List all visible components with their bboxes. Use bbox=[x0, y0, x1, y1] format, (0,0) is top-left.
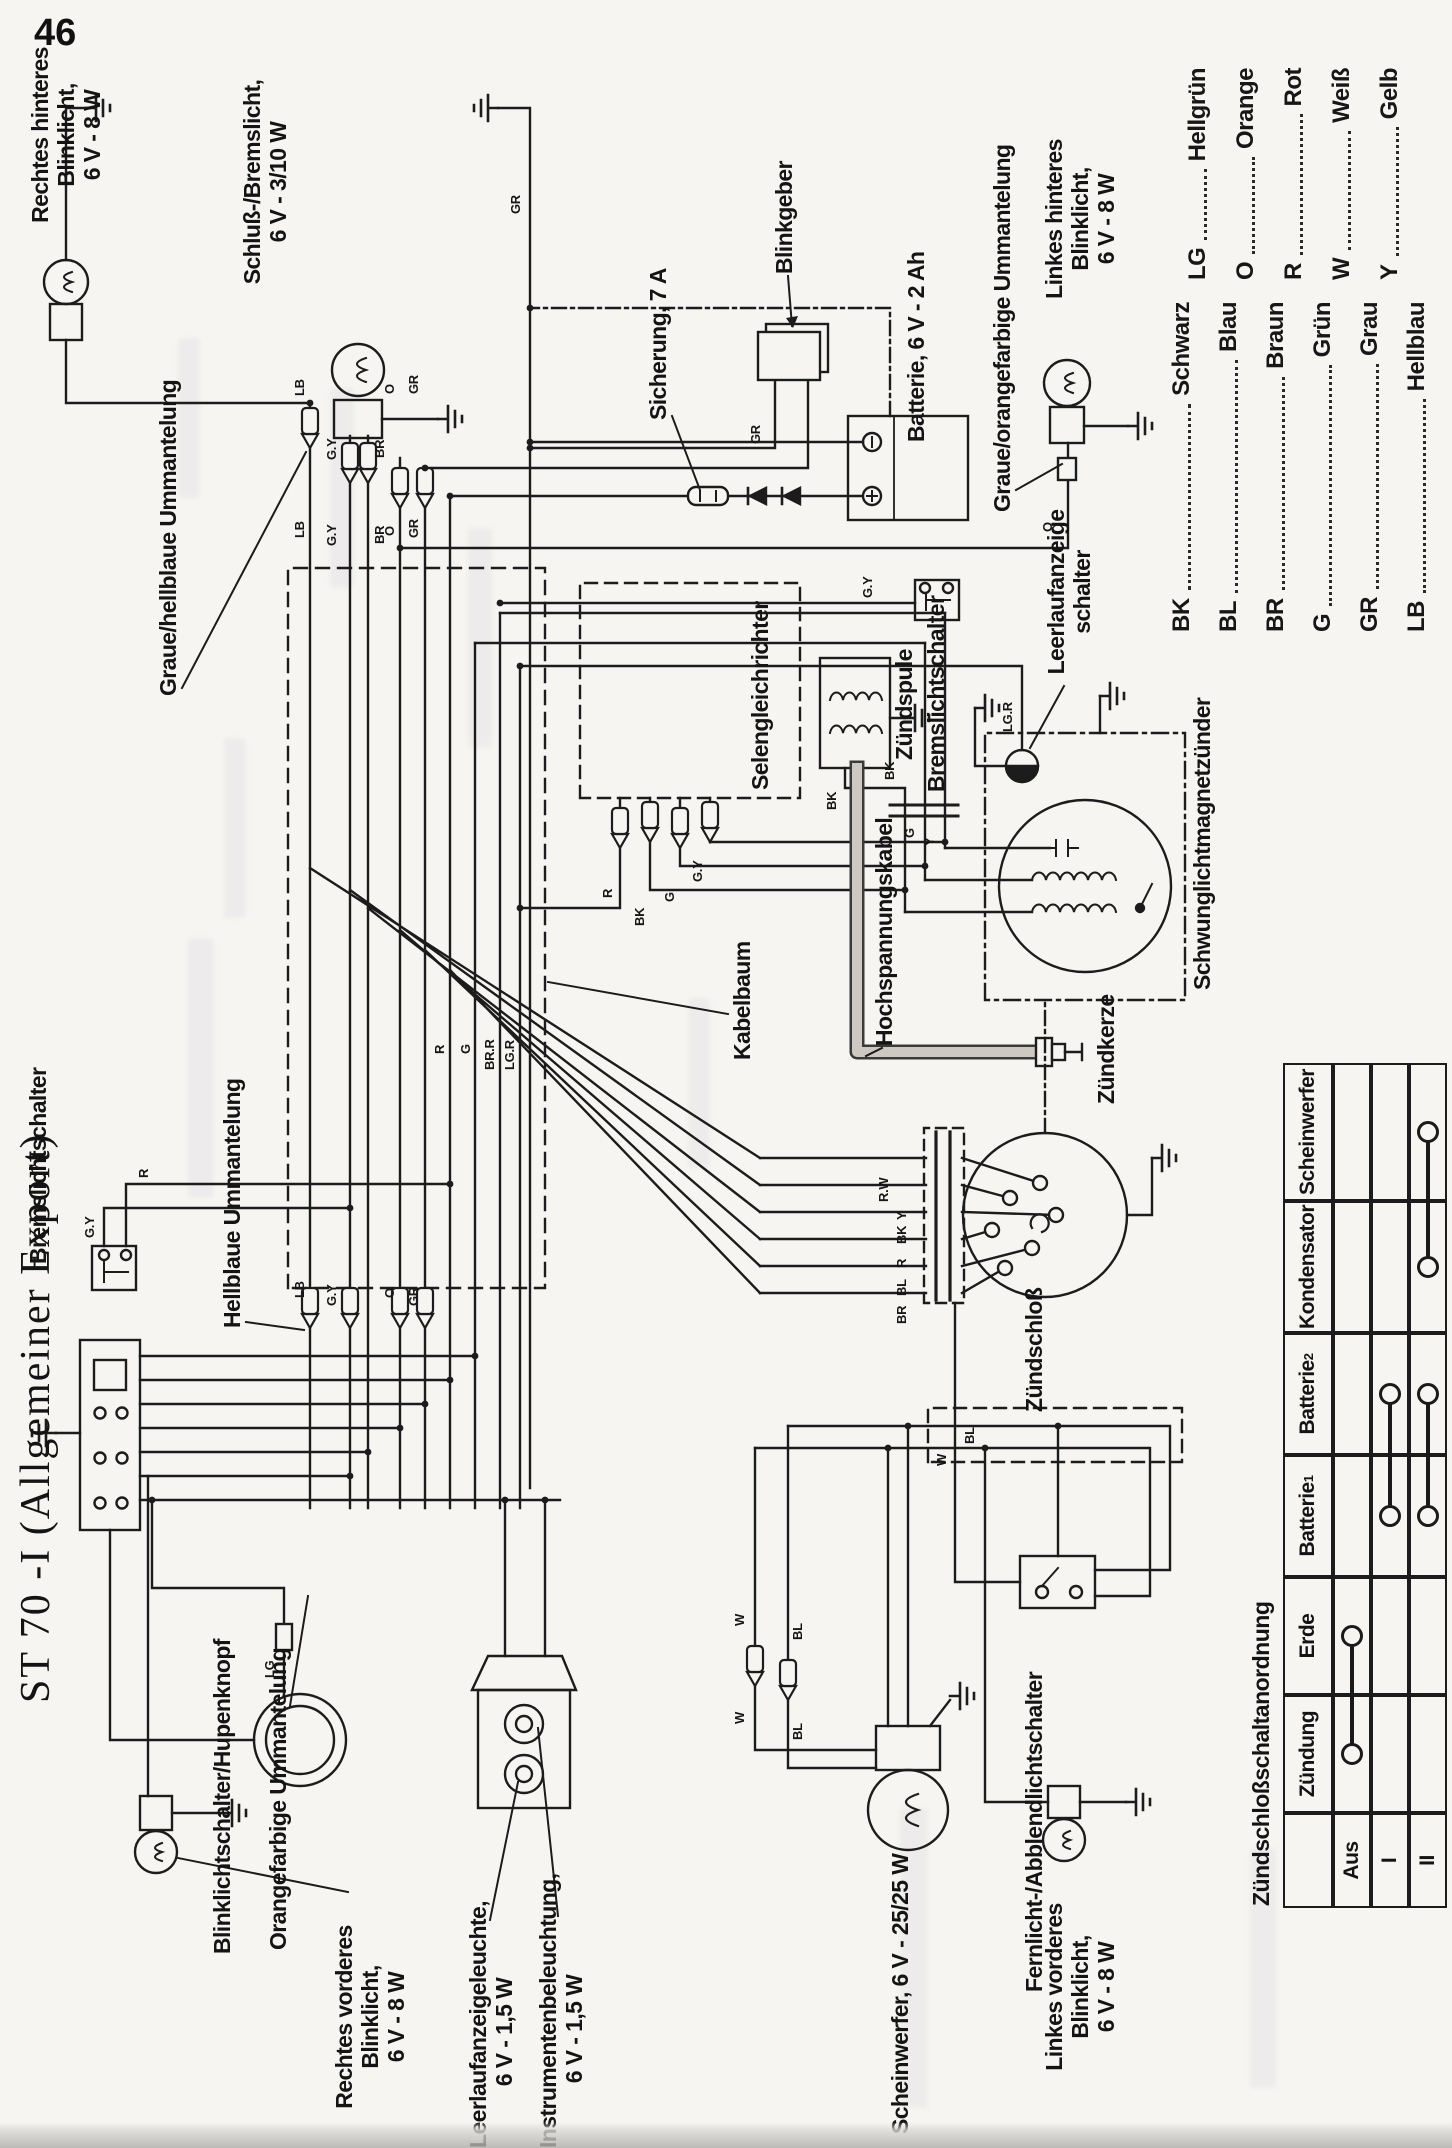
wire-color-label: LG.R bbox=[502, 1040, 517, 1070]
table-connection-bar bbox=[1350, 1636, 1353, 1754]
legend-leader-dots bbox=[1328, 365, 1332, 606]
wire-color-label: LG bbox=[262, 1661, 277, 1678]
label-scheinwerfer: Scheinwerfer, 6 V - 25/25 W bbox=[888, 1854, 914, 2134]
table-cell bbox=[1371, 1577, 1409, 1695]
wire-color-label: R bbox=[432, 1045, 447, 1054]
table-row-label: I bbox=[1371, 1813, 1409, 1908]
label-bremslichtschalter-vorn: Bremslichtschalter bbox=[26, 1068, 52, 1264]
table-cell bbox=[1333, 1455, 1371, 1577]
table-row-label: II bbox=[1409, 1813, 1447, 1908]
legend-leader-dots bbox=[1203, 169, 1207, 239]
switch-table-title: Zündschloßschaltanordnung bbox=[1248, 1602, 1275, 1906]
legend-name: Grün bbox=[1309, 302, 1337, 357]
table-header-kondensator: Kondensator bbox=[1283, 1201, 1333, 1333]
table-cell bbox=[1371, 1063, 1409, 1201]
legend-name: Hellgrün bbox=[1184, 68, 1212, 161]
wire-color-label: BL bbox=[894, 1279, 909, 1296]
table-connection-bar bbox=[1426, 1132, 1429, 1267]
wire-color-label: BL bbox=[790, 1723, 805, 1740]
label-zundspule: Zündspule bbox=[892, 649, 918, 760]
legend-name: Braun bbox=[1262, 302, 1290, 369]
table-cell bbox=[1333, 1063, 1371, 1201]
wire-color-label: LB bbox=[292, 1281, 307, 1298]
wire-color-label: GR bbox=[508, 195, 523, 214]
legend-row: LBHellblau bbox=[1403, 302, 1431, 632]
table-contact-circle bbox=[1341, 1743, 1363, 1765]
wire-color-label: G bbox=[662, 892, 677, 902]
table-cell bbox=[1333, 1201, 1371, 1333]
label-batterie: Batterie, 6 V - 2 Ah bbox=[904, 252, 930, 442]
wire-color-label: LG.R bbox=[1000, 702, 1015, 732]
legend-leader-dots bbox=[1347, 131, 1351, 250]
wire-color-label: BR.R bbox=[482, 1039, 497, 1070]
label-selengleichrichter: Selengleichrichter bbox=[748, 601, 774, 790]
table-contact-circle bbox=[1341, 1625, 1363, 1647]
wire-color-label: BR bbox=[894, 1306, 909, 1324]
wire-color-label: R bbox=[136, 1169, 151, 1178]
table-cell bbox=[1409, 1695, 1447, 1813]
label-orangefarbige-ummantelung: Orangefarbige Ummantelung bbox=[266, 1648, 292, 1950]
table-header-erde: Erde bbox=[1283, 1577, 1333, 1695]
legend-name: Schwarz bbox=[1168, 302, 1196, 396]
scan-edge bbox=[0, 2122, 1452, 2148]
legend-row: WWeiß bbox=[1328, 68, 1356, 280]
legend-name: Rot bbox=[1280, 68, 1308, 106]
legend-row: GGrün bbox=[1309, 302, 1337, 632]
label-linkes-hinteres-blinklicht: Linkes hinteres Blinklicht,6 V - 8 W bbox=[1042, 88, 1119, 350]
label-hellblaue-ummantelung: Hellblaue Ummantelung bbox=[220, 1079, 246, 1328]
wire-color-label: BK bbox=[824, 792, 839, 810]
wire-color-label: O bbox=[382, 384, 397, 394]
wire-color-label: BR bbox=[372, 440, 387, 458]
wire-color-label: G.Y bbox=[690, 861, 705, 883]
wire-color-label: G.Y bbox=[324, 1285, 339, 1307]
legend-name: Hellblau bbox=[1403, 302, 1431, 391]
legend-row: LGHellgrün bbox=[1184, 68, 1212, 280]
legend-leader-dots bbox=[1299, 114, 1303, 255]
wire-color-label: R.W bbox=[876, 1178, 891, 1202]
label-hochspannungskabel: Hochspannungskabel bbox=[872, 818, 898, 1046]
legend-leader-dots bbox=[1422, 399, 1426, 593]
wire-color-label: BL bbox=[790, 1623, 805, 1640]
wire-color-label: G.Y bbox=[324, 439, 339, 461]
legend-row: RRot bbox=[1280, 68, 1308, 280]
wire-color-label: Y bbox=[894, 1212, 909, 1220]
table-corner-cell bbox=[1283, 1813, 1333, 1908]
table-header-zündung: Zündung bbox=[1283, 1695, 1333, 1813]
legend-code: GR bbox=[1356, 597, 1384, 632]
wire-color-label: O bbox=[382, 526, 397, 536]
legend-code: BK bbox=[1168, 598, 1196, 632]
table-contact-circle bbox=[1379, 1505, 1401, 1527]
wire-color-label: W bbox=[934, 1454, 949, 1466]
wire-color-label: BL bbox=[962, 1427, 977, 1444]
wire-color-label: G bbox=[458, 1044, 473, 1054]
label-linkes-vorderes-blinklicht: Linkes vorderes Blinklicht,6 V - 8 W bbox=[1042, 1858, 1119, 2116]
wire-color-label: O bbox=[1040, 522, 1055, 532]
legend-name: Weiß bbox=[1328, 68, 1356, 123]
label-zundschloss: Zündschloß bbox=[1022, 1288, 1048, 1412]
table-contact-circle bbox=[1417, 1256, 1439, 1278]
legend-leader-dots bbox=[1187, 404, 1191, 590]
legend-row: BKSchwarz bbox=[1168, 302, 1196, 632]
legend-code: LB bbox=[1403, 601, 1431, 632]
label-sicherung: Sicherung, 7 A bbox=[646, 268, 672, 420]
legend-name: Blau bbox=[1215, 302, 1243, 352]
label-schwunglichtmagnetzunder: Schwunglichtmagnetzünder bbox=[1190, 698, 1216, 990]
wire-color-label: LB bbox=[292, 521, 307, 538]
wire-color-label: W bbox=[732, 1614, 747, 1626]
legend-leader-dots bbox=[1375, 364, 1379, 589]
legend-code: LG bbox=[1184, 248, 1212, 280]
table-contact-circle bbox=[1417, 1505, 1439, 1527]
legend-leader-dots bbox=[1281, 377, 1285, 590]
label-blinklichtschalter-hupenknopf: Blinklichtschalter/Hupenknopf bbox=[210, 1639, 236, 1954]
label-leerlaufanzeigeleuchte: Leerlaufanzeigeleuchte,6 V - 1,5 W bbox=[466, 1916, 518, 2148]
wire-color-label: BK bbox=[882, 762, 897, 780]
legend-leader-dots bbox=[1251, 157, 1255, 254]
wire-color-label: G.Y bbox=[82, 1217, 97, 1239]
legend-code: O bbox=[1232, 262, 1260, 280]
rotated-diagram-canvas: ST 70 -I (Allgemeiner Export) Rechtes hi… bbox=[0, 0, 1452, 2148]
label-instrumentenbeleuchtung: Instrumentenbeleuchtung,6 V - 1,5 W bbox=[536, 1910, 588, 2148]
legend-code: R bbox=[1280, 263, 1308, 280]
label-graue-hellblaue-ummantelung: Graue/hellblaue Ummantelung bbox=[156, 380, 182, 696]
wire-color-label: LB bbox=[292, 379, 307, 396]
table-contact-circle bbox=[1417, 1121, 1439, 1143]
table-contact-circle bbox=[1417, 1383, 1439, 1405]
label-graue-orangefarbige-ummantelung: Graue/orangefarbige Ummantelung bbox=[990, 145, 1016, 512]
wire-color-label: O bbox=[382, 1288, 397, 1298]
legend-leader-dots bbox=[1234, 360, 1238, 593]
legend-name: Gelb bbox=[1376, 68, 1404, 119]
legend-code: Y bbox=[1376, 264, 1404, 280]
wire-color-label: GR bbox=[406, 1287, 421, 1306]
legend-row: OOrange bbox=[1232, 68, 1260, 280]
wire-color-label: GR bbox=[748, 425, 763, 444]
legend-code: G bbox=[1309, 614, 1337, 632]
label-bremslichtschalter-hinten: Bremslichtschalter bbox=[924, 596, 950, 792]
label-blinkgeber: Blinkgeber bbox=[772, 161, 798, 274]
legend-row: BLBlau bbox=[1215, 302, 1243, 632]
table-header-batterie: Batterie2 bbox=[1283, 1333, 1333, 1455]
legend-code: BL bbox=[1215, 601, 1243, 632]
legend-row: GRGrau bbox=[1356, 302, 1384, 632]
wire-color-label: W bbox=[732, 1712, 747, 1724]
wire-color-label: R bbox=[600, 889, 615, 898]
wire-color-label: BK bbox=[894, 1226, 909, 1244]
table-cell bbox=[1371, 1695, 1409, 1813]
legend-row: BRBraun bbox=[1262, 302, 1290, 632]
table-row-label: Aus bbox=[1333, 1813, 1371, 1908]
wire-color-label: G bbox=[902, 828, 917, 838]
legend-name: Grau bbox=[1356, 302, 1384, 356]
table-connection-bar bbox=[1388, 1394, 1391, 1516]
table-cell bbox=[1371, 1201, 1409, 1333]
table-cell bbox=[1409, 1577, 1447, 1695]
label-kabelbaum: Kabelbaum bbox=[730, 941, 756, 1060]
label-schluss-bremslicht: Schluß-/Bremslicht,6 V - 3/10 W bbox=[240, 66, 292, 298]
legend-row: YGelb bbox=[1376, 68, 1404, 280]
legend-code: W bbox=[1328, 258, 1356, 280]
table-contact-circle bbox=[1379, 1383, 1401, 1405]
table-header-batterie: Batterie1 bbox=[1283, 1455, 1333, 1577]
wire-color-label: R bbox=[894, 1259, 909, 1268]
label-zundkerze: Zündkerze bbox=[1094, 994, 1120, 1104]
manual-page: 46 bbox=[0, 0, 1452, 2148]
wire-color-label: G.Y bbox=[860, 577, 875, 599]
legend-leader-dots bbox=[1395, 127, 1399, 256]
label-rechtes-hinteres-blinklicht: Rechtes hinteres Blinklicht,6 V - 8 W bbox=[28, 6, 105, 264]
table-cell bbox=[1333, 1333, 1371, 1455]
table-header-scheinwerfer: Scheinwerfer bbox=[1283, 1063, 1333, 1201]
label-rechtes-vorderes-blinklicht: Rechtes vorderes Blinklicht,6 V - 8 W bbox=[332, 1888, 409, 2146]
wire-color-label: BK bbox=[632, 908, 647, 926]
wire-color-label: Y bbox=[922, 838, 937, 846]
legend-name: Orange bbox=[1232, 68, 1260, 149]
legend-code: BR bbox=[1262, 598, 1290, 632]
wire-color-label: GR bbox=[406, 375, 421, 394]
wire-color-label: GR bbox=[406, 519, 421, 538]
wire-color-label: G.Y bbox=[324, 525, 339, 547]
table-connection-bar bbox=[1426, 1394, 1429, 1516]
